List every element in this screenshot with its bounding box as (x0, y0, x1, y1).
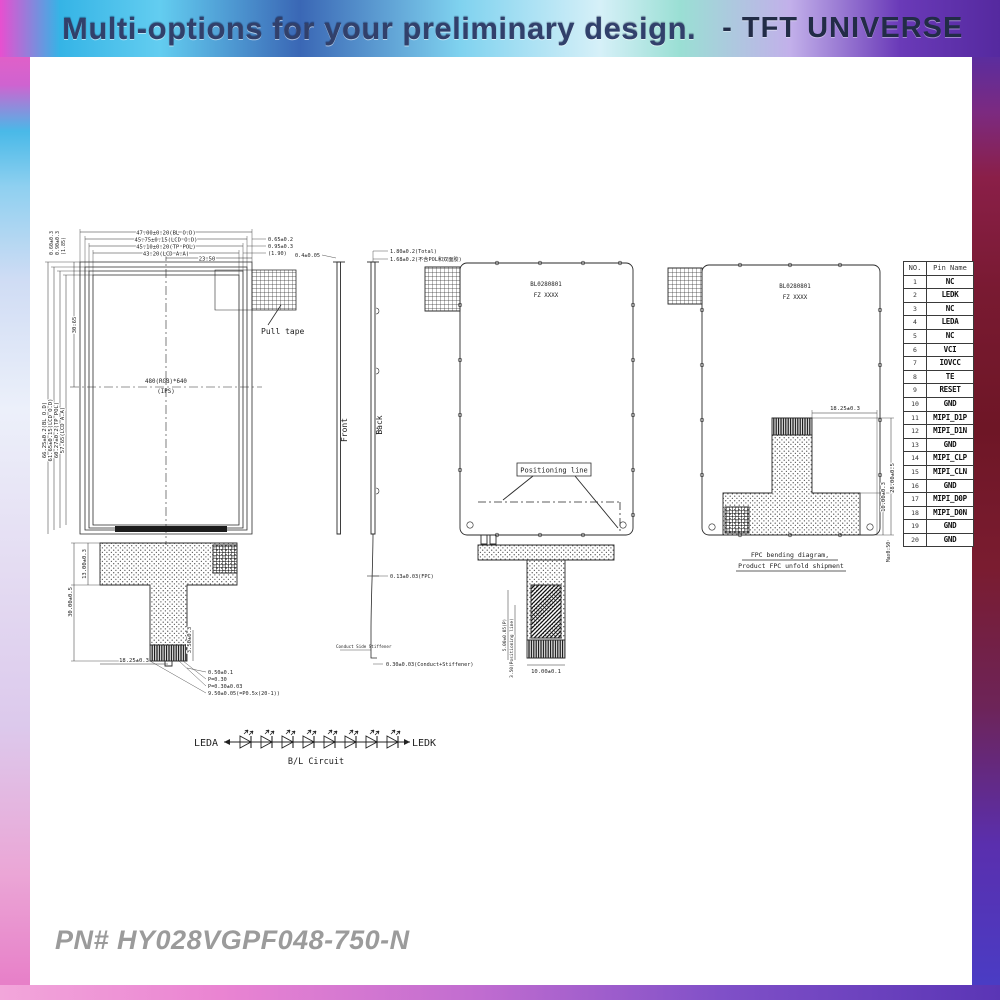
pin-row: 5NC (904, 329, 974, 343)
dim-tail-pos: 3.50(Positioning line) (509, 618, 515, 678)
back-marking-1: BL0280801 (530, 282, 562, 288)
pin-row: 10GND (904, 397, 974, 411)
pin-number: 12 (904, 425, 927, 439)
dim-tp-pol-h: 45.10±0.20(TP POL) (136, 245, 196, 251)
pin-number: 11 (904, 411, 927, 425)
dim-pol-thickness: 0.4±0.05 (295, 253, 320, 259)
dim-pin-2: P=0.30 (208, 677, 227, 683)
back-pull-tape-hatch (425, 267, 460, 311)
screen-resolution-label: 480(RGB)*640 (145, 379, 187, 385)
led-row (240, 730, 400, 748)
pull-tape-label: Pull tape (261, 327, 305, 336)
back-view (425, 261, 635, 665)
dim-right-3: (1.90) (268, 251, 287, 257)
pin-row: 8TE (904, 370, 974, 384)
pin-number: 20 (904, 533, 927, 547)
pin-name: MIPI_CLN (927, 465, 974, 479)
dim-pin-3: P=0.30±0.03 (208, 684, 242, 690)
pin-name: GND (927, 520, 974, 534)
pin-row: 14MIPI_CLP (904, 452, 974, 466)
pin-row: 19GND (904, 520, 974, 534)
pin-name: GND (927, 397, 974, 411)
back-marking-2: FZ XXXX (534, 293, 559, 299)
dim-fpc-thickness: 0.13±0.03(FPC) (390, 574, 434, 580)
bl-circuit (224, 730, 410, 748)
pin-name: MIPI_CLP (927, 452, 974, 466)
folded-pull-tape-hatch (668, 268, 702, 304)
dim-right-2: 0.95±0.3 (268, 244, 293, 250)
pin-row: 17MIPI_D0P (904, 493, 974, 507)
folded-view (668, 263, 894, 571)
pin-name: GND (927, 479, 974, 493)
bl-cathode-label: LEDK (412, 738, 436, 749)
led-diode-icon (240, 730, 253, 748)
front-view (45, 229, 296, 545)
pull-tape-hatch (252, 270, 296, 310)
pin-number: 3 (904, 302, 927, 316)
dim-folded-max: Max0.50 (886, 542, 892, 562)
dim-fpc-tail: 3.50±0.3 (187, 627, 193, 654)
pin-number: 16 (904, 479, 927, 493)
pin-row: 4LEDA (904, 316, 974, 330)
pin-row: 18MIPI_D0N (904, 506, 974, 520)
led-diode-icon (345, 730, 358, 748)
pin-name: LEDK (927, 289, 974, 303)
pin-table-header-row: NO. Pin Name (904, 262, 974, 276)
led-diode-icon (324, 730, 337, 748)
led-diode-icon (282, 730, 295, 748)
pin-name: MIPI_D1N (927, 425, 974, 439)
pin-name: MIPI_D0P (927, 493, 974, 507)
folded-marking-2: FZ XXXX (783, 295, 808, 301)
dim-fpc-upper: 13.00±0.3 (82, 549, 88, 579)
dim-right-1: 0.65±0.2 (268, 237, 293, 243)
pin-number: 15 (904, 465, 927, 479)
pin-table-header-name: Pin Name (927, 262, 974, 276)
dim-lcd-od-h: 45.75±0.15(LCD O.D) (135, 238, 198, 244)
pin-name: NC (927, 302, 974, 316)
led-diode-icon (387, 730, 400, 748)
dim-no-pol-thickness: 1.68±0.2(不含POL和双面胶) (390, 255, 462, 263)
pin-name: LEDA (927, 316, 974, 330)
dim-bl-od-h: 47.00±0.20(BL O.D) (136, 231, 196, 237)
pin-number: 6 (904, 343, 927, 357)
pin-row: 16GND (904, 479, 974, 493)
dim-tail-pitch: 5.00±0.05(P) (502, 619, 508, 652)
pin-number: 14 (904, 452, 927, 466)
pin-name: GND (927, 533, 974, 547)
dim-pin-1: 0.50±0.1 (208, 670, 233, 676)
dim-center-left: 30.65 (72, 317, 78, 334)
dim-left-small-3: (1.85) (61, 237, 67, 255)
pin-assignment-table: NO. Pin Name 1NC2LEDK3NC4LEDA5NC6VCI7IOV… (903, 261, 974, 547)
dim-pin-4: 9.50±0.05(=P0.5x(20-1)) (208, 691, 280, 697)
pin-number: 10 (904, 397, 927, 411)
pin-name: MIPI_D1P (927, 411, 974, 425)
screen-panel-type-label: (IPS) (157, 389, 174, 395)
pin-number: 18 (904, 506, 927, 520)
bl-anode-label: LEDA (194, 738, 218, 749)
pin-number: 19 (904, 520, 927, 534)
pin-row: 6VCI (904, 343, 974, 357)
pin-row: 2LEDK (904, 289, 974, 303)
pin-number: 9 (904, 384, 927, 398)
pin-row: 20GND (904, 533, 974, 547)
pin-name: MIPI_D0N (927, 506, 974, 520)
pin-number: 1 (904, 275, 927, 289)
pin-row: 12MIPI_D1N (904, 425, 974, 439)
led-diode-icon (261, 730, 274, 748)
folded-caption-1: FPC bending diagram, (751, 551, 829, 559)
pin-table-body: 1NC2LEDK3NC4LEDA5NC6VCI7IOVCC8TE9RESET10… (904, 275, 974, 547)
pin-row: 7IOVCC (904, 357, 974, 371)
dim-conduct-thickness: 0.30±0.03(Conduct+Stiffener) (386, 662, 473, 668)
dim-lcd-aa-v: 57.65(LCD A.A) (60, 407, 66, 453)
pin-row: 15MIPI_CLN (904, 465, 974, 479)
pin-name: NC (927, 275, 974, 289)
conduct-note-label: Conduct Side Stiffener (336, 644, 392, 649)
engineering-drawing: 480(RGB)*640 (IPS) Pull tape 47.00±0.20(… (0, 0, 1000, 1000)
folded-caption-2: Product FPC unfold shipment (738, 562, 844, 570)
pin-name: RESET (927, 384, 974, 398)
pin-table-header-no: NO. (904, 262, 927, 276)
pin-number: 8 (904, 370, 927, 384)
pin-name: VCI (927, 343, 974, 357)
positioning-line-label: Positioning line (520, 467, 587, 475)
pin-number: 2 (904, 289, 927, 303)
pin-row: 1NC (904, 275, 974, 289)
dim-lcd-aa-h: 43.20(LCD A.A) (143, 252, 189, 258)
pin-name: NC (927, 329, 974, 343)
folded-marking-1: BL0280801 (779, 284, 811, 290)
dim-folded-h1: 10.00±0.3 (881, 482, 887, 512)
dim-tail-width: 10.00±0.1 (531, 669, 561, 675)
pin-number: 13 (904, 438, 927, 452)
pin-number: 4 (904, 316, 927, 330)
dim-fpc-total: 30.00±0.5 (68, 587, 74, 617)
pin-number: 5 (904, 329, 927, 343)
side-back-label: Back (375, 415, 384, 434)
led-diode-icon (303, 730, 316, 748)
pin-name: GND (927, 438, 974, 452)
side-front-label: Front (340, 418, 349, 442)
side-view (322, 251, 388, 664)
dim-total-thickness: 1.80±0.2(Total) (390, 249, 437, 255)
part-number: PN# HY028VGPF048-750-N (55, 925, 410, 956)
pin-number: 7 (904, 357, 927, 371)
pin-row: 3NC (904, 302, 974, 316)
pin-row: 11MIPI_D1P (904, 411, 974, 425)
dim-folded-offset: 18.25±0.3 (830, 406, 860, 412)
bl-circuit-caption: B/L Circuit (288, 757, 344, 767)
dim-fpc-offset: 18.25±0.3 (119, 658, 149, 664)
pin-name: TE (927, 370, 974, 384)
dim-folded-h2: 28.00±0.5 (890, 463, 896, 493)
dim-half-width: 23.50 (199, 257, 216, 263)
pin-name: IOVCC (927, 357, 974, 371)
pin-number: 17 (904, 493, 927, 507)
led-diode-icon (366, 730, 379, 748)
pin-row: 13GND (904, 438, 974, 452)
pin-row: 9RESET (904, 384, 974, 398)
